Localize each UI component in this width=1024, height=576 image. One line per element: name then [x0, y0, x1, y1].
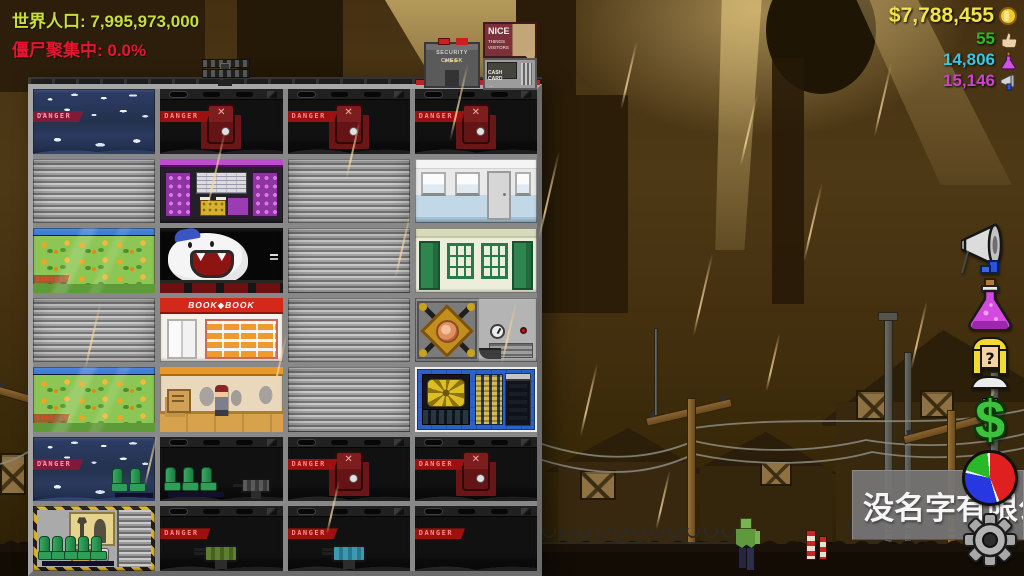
- zombie-gathering-label: 僵尸聚集中: 0.0%: [12, 36, 146, 61]
- pie-chart-icon: [962, 450, 1018, 506]
- room-closed-shutter[interactable]: [33, 298, 155, 363]
- roof-turret[interactable]: [202, 58, 248, 86]
- influence-counter: 15,146: [943, 71, 1018, 91]
- green-chair: [111, 468, 127, 496]
- security-booth-label2: CHECK ▶▶▶: [426, 58, 478, 64]
- lab-box: [227, 197, 249, 216]
- rubble: [415, 558, 537, 571]
- bookstore-sign: BOOK◆BOOK: [160, 298, 282, 314]
- vent-bar: [288, 506, 410, 517]
- science-counter: 14,806: [943, 50, 1018, 70]
- danger-label: DANGER: [415, 111, 465, 122]
- cash-card-machine[interactable]: CASH CARD →: [483, 58, 537, 90]
- room-server-selected[interactable]: [415, 367, 537, 432]
- security-check-booth[interactable]: SECURITY CHECK ▶▶▶: [424, 42, 480, 88]
- finance-menu-button[interactable]: $: [960, 392, 1020, 448]
- containment-robot: [335, 451, 363, 491]
- research-menu-button[interactable]: [960, 278, 1020, 334]
- containment-robot: [462, 104, 490, 144]
- nice-visitors-sign: NICE THINGS VISITORS: [483, 22, 537, 58]
- containment-robot: [335, 104, 363, 144]
- mascot-base: [160, 280, 282, 293]
- server-cabinet: [505, 373, 531, 426]
- flask-icon: [999, 51, 1018, 70]
- green-chair: [129, 468, 145, 496]
- danger-label: DANGER: [33, 414, 70, 423]
- room-school[interactable]: [415, 228, 537, 293]
- vent-bar: [415, 506, 537, 517]
- double-door: [167, 319, 197, 360]
- defense-turret: [241, 478, 271, 493]
- room-post-office[interactable]: [160, 367, 282, 432]
- money-counter: $7,788,455: [889, 4, 1018, 28]
- broadcast-menu-button[interactable]: [960, 220, 1020, 276]
- vent-bar: [160, 89, 282, 100]
- vent-bar: [415, 437, 537, 448]
- settings-menu-button[interactable]: [960, 512, 1020, 568]
- green-turret: [204, 545, 238, 562]
- fan-panel: [422, 374, 470, 412]
- room-containment-robot[interactable]: DANGER: [415, 437, 537, 502]
- zombie-leg: [739, 548, 746, 568]
- ram-sticks: [475, 374, 503, 425]
- pipe-elbow: [479, 348, 501, 359]
- room-closed-shutter[interactable]: [288, 367, 410, 432]
- room-containment-empty[interactable]: DANGER: [415, 506, 537, 571]
- vent-bar: [160, 437, 282, 448]
- mascot-mouth: [190, 250, 234, 278]
- shutter-door: [117, 510, 151, 567]
- mystery-person-icon: ?: [962, 334, 1018, 390]
- pressure-gauge: [490, 324, 505, 339]
- vent-bar: [160, 506, 282, 517]
- green-door: [512, 241, 533, 290]
- flask-icon: [964, 277, 1016, 335]
- room-bookstore[interactable]: BOOK◆BOOK: [160, 298, 282, 363]
- zombie-leg: [747, 548, 754, 570]
- worker-sprite: [215, 385, 228, 416]
- sign-text: NICE: [488, 26, 510, 36]
- parcel-boxes: [167, 389, 191, 413]
- science-value: 14,806: [943, 50, 995, 70]
- world-population-label: 世界人口: 7,995,973,000: [12, 7, 199, 32]
- orange-banner: [160, 367, 282, 376]
- red-button: [520, 327, 527, 334]
- room-closed-shutter[interactable]: [288, 298, 410, 363]
- danger-label: DANGER: [33, 111, 83, 122]
- room-bathroom[interactable]: [415, 159, 537, 224]
- lab-console: [196, 172, 246, 194]
- money-value: $7,788,455: [889, 4, 994, 28]
- green-chair: [200, 467, 216, 495]
- containment-robot: [462, 451, 490, 491]
- thumbs-up-icon: [999, 30, 1018, 49]
- zombie-head: [740, 518, 752, 529]
- game-screen: SECURITY CHECK ▶▶▶ NICE THINGS VISITORS …: [0, 0, 1024, 576]
- resource-counters: $7,788,455 55 14,806 15,146: [889, 4, 1018, 91]
- turret-hub: [220, 63, 230, 78]
- window: [515, 172, 531, 196]
- window: [455, 172, 480, 196]
- advisor-menu-button[interactable]: ?: [960, 334, 1020, 390]
- room-purple-lab[interactable]: [160, 159, 282, 224]
- window: [481, 243, 508, 279]
- room-containment-robot[interactable]: DANGER: [288, 437, 410, 502]
- vent-bar: [415, 89, 537, 100]
- room-closed-shutter[interactable]: [288, 159, 410, 224]
- likes-counter: 55: [976, 29, 1018, 49]
- danger-label: DANGER: [415, 459, 465, 470]
- room-greenhouse[interactable]: DANGER: [33, 367, 155, 432]
- room-containment-robot[interactable]: DANGER: [415, 89, 537, 154]
- room-food-machine[interactable]: [415, 298, 537, 363]
- room-closed-shutter[interactable]: [288, 228, 410, 293]
- room-turret-green[interactable]: DANGER: [160, 506, 282, 571]
- blue-turret: [332, 545, 366, 562]
- danger-label: DANGER: [160, 111, 210, 122]
- zombie-arm: [755, 531, 760, 544]
- room-turret-blue[interactable]: DANGER: [288, 506, 410, 571]
- lab-crate: [200, 200, 226, 216]
- danger-label: DANGER: [415, 528, 465, 539]
- striped-post: [806, 530, 816, 560]
- danger-label: DANGER: [160, 528, 210, 539]
- room-greenhouse[interactable]: DANGER: [33, 228, 155, 293]
- room-seats-turret[interactable]: [160, 437, 282, 502]
- coin-icon: [998, 6, 1018, 26]
- room-containment-robot[interactable]: DANGER: [160, 89, 282, 154]
- sign-text: THINGS: [488, 39, 505, 44]
- slot-grid: [422, 409, 470, 425]
- room-frozen-storage[interactable]: DANGER: [33, 89, 155, 154]
- book-shelves: [205, 319, 277, 360]
- room-mascot[interactable]: [160, 228, 282, 293]
- vent-bar: [288, 89, 410, 100]
- utility-pole: [687, 398, 696, 548]
- megaphone-icon: [999, 72, 1018, 91]
- window: [421, 172, 446, 196]
- room-containment-robot[interactable]: DANGER: [288, 89, 410, 154]
- dollar-icon: $: [975, 392, 1005, 448]
- yellow-fan: [427, 379, 465, 407]
- stats-menu-button[interactable]: [960, 450, 1020, 506]
- zombie-torso: [736, 529, 756, 548]
- danger-label: DANGER: [288, 459, 338, 470]
- security-booth-label: SECURITY: [426, 50, 478, 56]
- door: [487, 171, 511, 221]
- room-closed-shutter[interactable]: [33, 159, 155, 224]
- arrow-icon: →: [488, 84, 493, 89]
- danger-label: DANGER: [288, 528, 338, 539]
- turret-base: [218, 80, 232, 86]
- room-frozen-seats[interactable]: DANGER: [33, 437, 155, 502]
- led-marks: [270, 254, 278, 256]
- lab-machine: [252, 172, 278, 218]
- sign-text: VISITORS: [488, 45, 509, 50]
- vent-bar: [288, 437, 410, 448]
- likes-value: 55: [976, 29, 995, 49]
- green-chair: [164, 467, 180, 495]
- striped-post: [819, 536, 827, 560]
- danger-label: DANGER: [33, 275, 70, 284]
- building-grid: DANGER DANGER DANGER DANGER: [28, 84, 542, 576]
- zombie: [733, 516, 761, 572]
- green-chair: [90, 536, 106, 564]
- green-chair: [182, 467, 198, 495]
- lab-machine: [165, 172, 191, 218]
- gear-icon: [962, 512, 1018, 568]
- window: [447, 243, 474, 279]
- influence-value: 15,146: [943, 71, 995, 91]
- green-door: [419, 241, 440, 290]
- cash-machine-label: CARD: [488, 77, 502, 82]
- containment-robot: [207, 104, 235, 144]
- svg-text:?: ?: [985, 349, 994, 368]
- meat-window: [436, 320, 459, 343]
- megaphone-icon: [961, 219, 1019, 277]
- danger-label: DANGER: [288, 111, 338, 122]
- fence: [540, 528, 750, 544]
- danger-label: DANGER: [33, 459, 83, 470]
- lab-banner: [160, 159, 282, 167]
- room-workshop-selected[interactable]: [33, 506, 155, 571]
- workshop-interior: [37, 510, 151, 567]
